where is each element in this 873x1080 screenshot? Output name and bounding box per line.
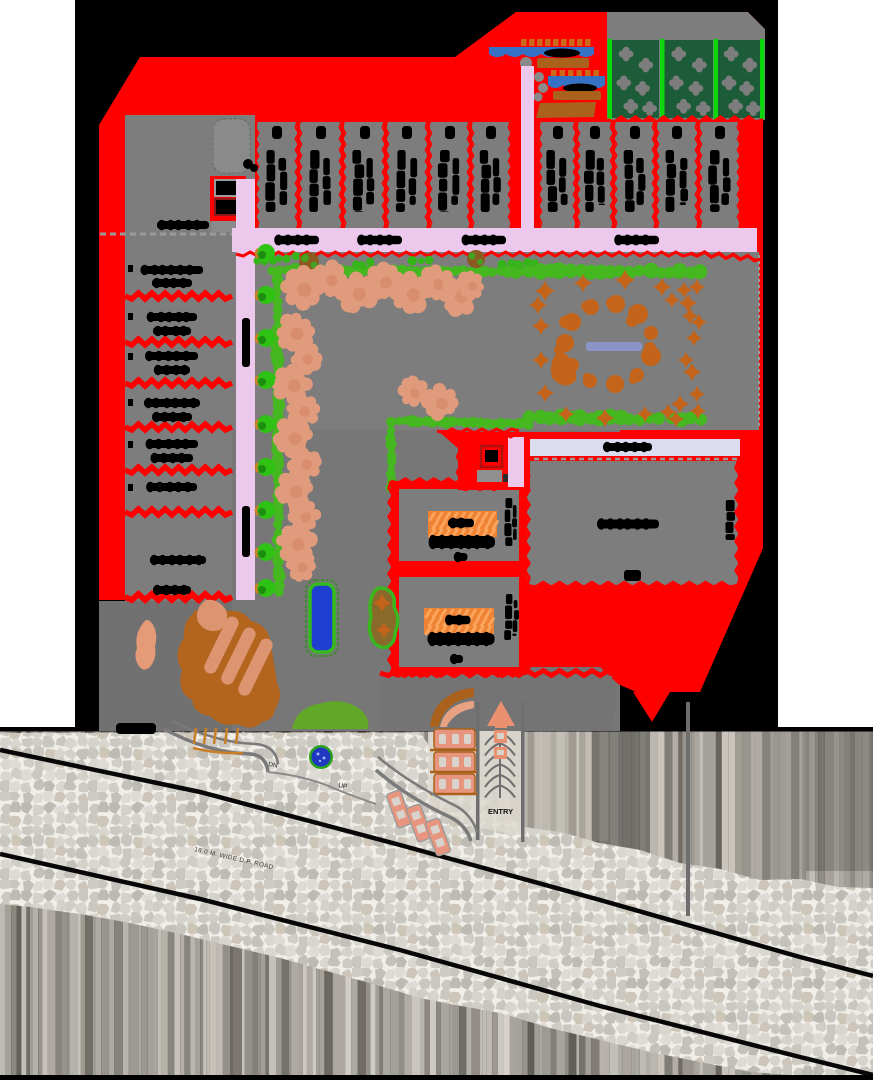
svg-text:ENTRY: ENTRY (488, 807, 513, 816)
